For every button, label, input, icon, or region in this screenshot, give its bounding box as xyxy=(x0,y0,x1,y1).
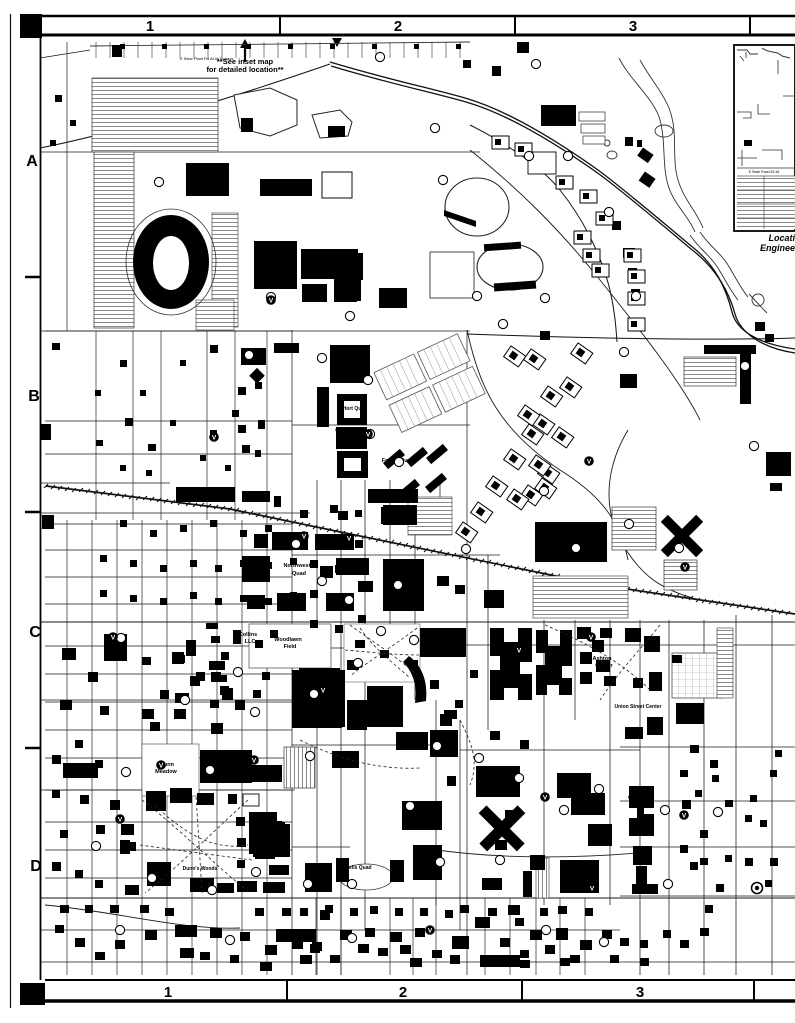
svg-text:V: V xyxy=(212,435,217,442)
svg-text:V: V xyxy=(302,534,307,541)
svg-text:Field: Field xyxy=(284,644,297,650)
svg-text:B: B xyxy=(28,388,40,405)
svg-text:Center: Center xyxy=(595,663,613,669)
svg-text:Wells Quad: Wells Quad xyxy=(344,865,371,871)
svg-text:Collins: Collins xyxy=(239,632,257,638)
svg-text:Northwest: Northwest xyxy=(284,563,311,569)
svg-text:3: 3 xyxy=(636,984,644,1001)
svg-text:V: V xyxy=(683,565,688,572)
svg-text:V: V xyxy=(159,763,164,770)
svg-text:V: V xyxy=(252,758,257,765)
svg-text:V: V xyxy=(587,459,592,466)
svg-text:V: V xyxy=(366,432,371,439)
svg-text:D: D xyxy=(30,858,42,875)
svg-text:V: V xyxy=(543,795,548,802)
svg-text:for detailed location**: for detailed location** xyxy=(206,65,283,74)
svg-text:V: V xyxy=(118,817,123,824)
svg-text:Locati: Locati xyxy=(768,233,795,243)
svg-text:V: V xyxy=(347,536,352,543)
svg-text:E State Road 45 46: E State Road 45 46 xyxy=(749,170,780,174)
svg-text:Dunn's Woods: Dunn's Woods xyxy=(183,866,218,872)
svg-text:E Stew Plant Rd At All Bypass: E Stew Plant Rd At All Bypass xyxy=(180,56,233,61)
svg-text:Woodlawn: Woodlawn xyxy=(274,637,302,643)
svg-text:LLC: LLC xyxy=(245,639,256,645)
svg-text:Willkie: Willkie xyxy=(628,796,644,802)
svg-text:V: V xyxy=(589,635,594,642)
svg-text:2: 2 xyxy=(394,18,402,35)
svg-text:1: 1 xyxy=(146,18,154,35)
svg-text:Quad: Quad xyxy=(292,571,306,577)
svg-text:Quad: Quad xyxy=(632,803,645,809)
svg-text:3: 3 xyxy=(629,18,637,35)
svg-text:Hort Qu: Hort Qu xyxy=(343,406,362,412)
svg-text:2: 2 xyxy=(399,984,407,1001)
svg-text:V: V xyxy=(682,813,687,820)
svg-text:Meadow: Meadow xyxy=(155,769,177,775)
svg-text:V: V xyxy=(269,298,274,305)
svg-text:Groove: Groove xyxy=(335,428,353,434)
svg-text:V: V xyxy=(590,886,595,893)
svg-text:V: V xyxy=(321,688,326,695)
svg-text:V: V xyxy=(111,635,116,642)
svg-text:A: A xyxy=(26,153,38,170)
svg-text:C: C xyxy=(29,624,41,641)
svg-text:V: V xyxy=(517,648,522,655)
svg-text:1: 1 xyxy=(164,984,172,1001)
svg-text:V: V xyxy=(428,928,433,935)
svg-text:Ashton: Ashton xyxy=(593,656,613,662)
svg-text:Union Street Center: Union Street Center xyxy=(615,704,662,710)
svg-text:Enginee: Enginee xyxy=(760,243,795,253)
